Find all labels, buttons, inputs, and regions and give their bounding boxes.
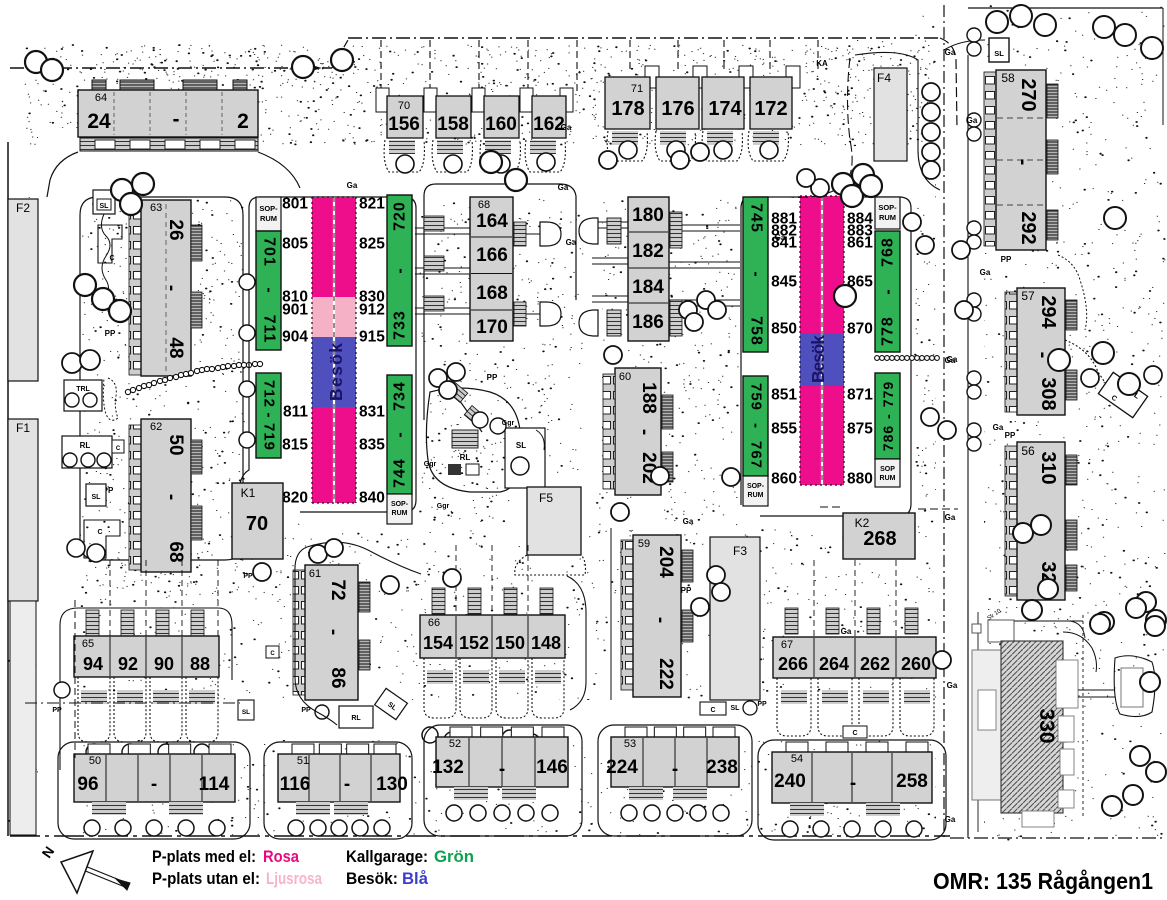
svg-text:170: 170 (476, 317, 508, 338)
svg-text:712: 712 (261, 380, 278, 408)
svg-text:310: 310 (1037, 451, 1059, 484)
svg-text:222: 222 (655, 658, 676, 690)
svg-text:-: - (392, 431, 409, 437)
svg-text:719: 719 (261, 423, 278, 451)
svg-text:-: - (151, 774, 157, 795)
svg-text:820: 820 (282, 490, 308, 507)
svg-text:-: - (323, 629, 344, 635)
svg-text:OMR: 135 Rågången1: OMR: 135 Rågången1 (933, 868, 1153, 894)
svg-text:767: 767 (748, 441, 765, 469)
svg-text:855: 855 (771, 421, 797, 438)
svg-text:845: 845 (771, 274, 797, 291)
svg-text:RUM: RUM (880, 475, 896, 482)
svg-text:-: - (880, 413, 896, 419)
svg-text:180: 180 (632, 205, 664, 226)
svg-text:PP: PP (301, 707, 311, 714)
svg-text:C: C (116, 446, 121, 452)
svg-text:915: 915 (359, 329, 385, 346)
svg-text:50: 50 (165, 434, 186, 455)
svg-text:240: 240 (774, 771, 806, 792)
svg-text:65: 65 (82, 638, 94, 650)
svg-text:54: 54 (791, 753, 803, 765)
svg-text:Ga: Ga (558, 183, 569, 192)
svg-text:-: - (344, 774, 350, 795)
svg-text:SL: SL (994, 49, 1004, 58)
svg-text:825: 825 (359, 236, 385, 253)
svg-text:92: 92 (118, 654, 138, 674)
svg-text:RUM: RUM (879, 213, 896, 222)
svg-text:-: - (634, 429, 655, 435)
svg-text:51: 51 (297, 755, 309, 767)
svg-text:59: 59 (638, 538, 650, 550)
svg-text:174: 174 (708, 98, 742, 120)
svg-text:SL: SL (92, 494, 102, 501)
svg-text:330: 330 (1035, 708, 1058, 743)
svg-text:Ga: Ga (561, 123, 572, 132)
svg-text:811: 811 (283, 404, 308, 421)
svg-text:262: 262 (860, 654, 890, 674)
svg-text:701: 701 (261, 237, 278, 267)
svg-text:-: - (173, 108, 180, 131)
svg-text:72: 72 (327, 579, 348, 600)
svg-text:70: 70 (398, 100, 410, 112)
svg-text:C: C (852, 730, 857, 737)
svg-text:48: 48 (165, 337, 186, 358)
svg-text:F2: F2 (16, 201, 30, 215)
svg-text:172: 172 (754, 98, 787, 120)
svg-text:778: 778 (880, 316, 897, 346)
svg-text:308: 308 (1037, 377, 1059, 410)
svg-text:Ga: Ga (993, 423, 1004, 432)
svg-text:154: 154 (423, 633, 453, 653)
svg-text:26: 26 (165, 219, 186, 240)
svg-text:744: 744 (392, 458, 409, 488)
svg-text:146: 146 (536, 757, 568, 778)
svg-text:912: 912 (359, 302, 385, 319)
svg-text:Ggr: Ggr (424, 461, 437, 468)
svg-text:178: 178 (611, 98, 644, 120)
svg-text:62: 62 (150, 421, 162, 433)
svg-text:164: 164 (476, 211, 508, 232)
svg-text:TRL: TRL (76, 386, 90, 393)
svg-text:K1: K1 (241, 486, 256, 500)
svg-text:258: 258 (896, 771, 928, 792)
svg-text:PP: PP (681, 586, 692, 595)
svg-text:292: 292 (1017, 211, 1039, 244)
svg-text:2: 2 (237, 110, 249, 133)
svg-text:Ga: Ga (945, 513, 956, 522)
svg-text:94: 94 (83, 654, 103, 674)
svg-text:176: 176 (661, 98, 694, 120)
svg-text:Ga: Ga (775, 233, 786, 242)
svg-text:-: - (650, 617, 671, 623)
svg-text:158: 158 (437, 114, 469, 135)
svg-text:57: 57 (1021, 289, 1035, 303)
svg-text:182: 182 (632, 241, 664, 262)
svg-text:RUM: RUM (748, 492, 764, 499)
svg-text:Ga: Ga (980, 268, 991, 277)
svg-text:58: 58 (1001, 71, 1015, 85)
svg-text:Ga: Ga (945, 356, 956, 365)
svg-text:Ga: Ga (347, 181, 358, 190)
svg-text:875: 875 (847, 421, 873, 438)
svg-text:70: 70 (246, 513, 268, 535)
svg-text:204: 204 (655, 546, 676, 578)
svg-text:-: - (672, 759, 678, 780)
svg-text:66: 66 (428, 617, 440, 629)
svg-text:68: 68 (165, 541, 186, 562)
svg-text:720: 720 (392, 201, 409, 231)
svg-text:264: 264 (819, 654, 849, 674)
svg-text:166: 166 (476, 245, 508, 266)
svg-text:24: 24 (87, 110, 111, 133)
svg-text:148: 148 (531, 633, 561, 653)
svg-text:Ga: Ga (841, 627, 852, 636)
svg-text:RUM: RUM (392, 510, 408, 517)
svg-text:RL: RL (351, 715, 361, 722)
svg-text:Ljusrosa: Ljusrosa (266, 869, 322, 888)
svg-text:745: 745 (748, 203, 765, 233)
svg-text:152: 152 (459, 633, 489, 653)
svg-text:68: 68 (478, 199, 490, 211)
svg-text:96: 96 (77, 774, 98, 795)
svg-text:786: 786 (880, 425, 896, 451)
svg-text:Besök: Besök (326, 343, 346, 401)
svg-text:PP: PP (105, 329, 116, 338)
svg-text:160: 160 (485, 114, 517, 135)
svg-text:P-plats med el:: P-plats med el: (152, 847, 256, 866)
svg-text:768: 768 (880, 237, 897, 267)
svg-text:184: 184 (632, 277, 664, 298)
svg-text:64: 64 (95, 92, 107, 104)
svg-text:RUM: RUM (260, 214, 277, 223)
svg-text:56: 56 (1021, 444, 1035, 458)
svg-text:Rosa: Rosa (263, 847, 299, 866)
svg-text:53: 53 (624, 738, 636, 750)
svg-text:P-plats utan el:: P-plats utan el: (152, 869, 260, 888)
svg-text:86: 86 (327, 667, 348, 688)
svg-text:861: 861 (847, 235, 873, 252)
svg-text:Besök: Besök (808, 335, 828, 383)
svg-text:156: 156 (388, 114, 420, 135)
svg-text:224: 224 (606, 757, 638, 778)
svg-text:Grön: Grön (434, 847, 474, 866)
svg-text:-: - (748, 271, 765, 277)
svg-text:C: C (710, 707, 715, 714)
svg-text:SOP: SOP (880, 466, 895, 473)
svg-text:759: 759 (748, 383, 765, 411)
svg-text:821: 821 (359, 196, 385, 213)
svg-text:SL: SL (731, 705, 741, 712)
svg-text:88: 88 (190, 654, 210, 674)
svg-text:SOP-: SOP- (259, 204, 278, 213)
svg-text:880: 880 (847, 471, 873, 488)
svg-text:904: 904 (282, 329, 308, 346)
svg-text:Kallgarage:: Kallgarage: (346, 847, 428, 866)
svg-text:835: 835 (359, 437, 385, 454)
svg-text:Ggr: Ggr (437, 503, 450, 510)
svg-text:168: 168 (476, 283, 508, 304)
svg-text:PP: PP (1001, 255, 1012, 264)
svg-text:Ga: Ga (967, 116, 978, 125)
svg-text:C: C (97, 529, 102, 536)
svg-text:90: 90 (154, 654, 174, 674)
svg-text:50: 50 (89, 755, 101, 767)
svg-text:150: 150 (495, 633, 525, 653)
svg-text:186: 186 (632, 312, 664, 333)
svg-text:-: - (392, 267, 409, 273)
svg-text:840: 840 (359, 490, 385, 507)
svg-text:266: 266 (778, 654, 808, 674)
svg-text:801: 801 (282, 196, 308, 213)
svg-text:260: 260 (901, 654, 931, 674)
svg-text:779: 779 (880, 381, 896, 407)
svg-text:Ga: Ga (947, 681, 958, 690)
svg-text:Blå: Blå (402, 869, 429, 888)
svg-text:63: 63 (150, 202, 162, 214)
svg-text:711: 711 (261, 315, 278, 344)
svg-text:-: - (850, 773, 856, 794)
svg-text:734: 734 (392, 381, 409, 411)
svg-text:871: 871 (847, 387, 873, 404)
svg-text:SL: SL (100, 203, 110, 210)
svg-text:Besök:: Besök: (346, 869, 398, 888)
svg-text:C: C (270, 651, 275, 657)
svg-text:SOP-: SOP- (747, 483, 765, 490)
svg-text:PP: PP (52, 707, 62, 714)
svg-text:114: 114 (199, 774, 230, 795)
svg-text:758: 758 (748, 316, 765, 346)
svg-text:831: 831 (359, 404, 385, 421)
svg-text:RL: RL (80, 441, 91, 450)
svg-text:Ggr: Ggr (502, 420, 515, 427)
svg-text:SL: SL (516, 441, 526, 450)
svg-text:SOP-: SOP- (391, 501, 409, 508)
svg-text:71: 71 (631, 83, 643, 95)
svg-text:F4: F4 (877, 71, 891, 85)
svg-text:PP: PP (757, 701, 767, 708)
svg-text:Ga: Ga (566, 238, 577, 247)
svg-text:268: 268 (863, 528, 896, 550)
svg-text:60: 60 (619, 371, 631, 383)
svg-text:805: 805 (282, 236, 308, 253)
svg-text:-: - (261, 287, 278, 293)
svg-text:C: C (109, 255, 114, 262)
svg-text:KA: KA (816, 59, 828, 68)
svg-text:F5: F5 (539, 491, 553, 505)
svg-text:-: - (748, 423, 765, 429)
svg-text:67: 67 (781, 639, 793, 651)
svg-text:F3: F3 (733, 544, 747, 558)
svg-text:870: 870 (847, 321, 873, 338)
svg-text:815: 815 (282, 437, 308, 454)
svg-text:61: 61 (309, 568, 321, 580)
svg-text:-: - (261, 413, 278, 419)
svg-text:PP: PP (1005, 431, 1016, 440)
svg-text:PP: PP (487, 373, 498, 382)
svg-text:Ga: Ga (945, 48, 956, 57)
svg-text:RL: RL (460, 453, 471, 462)
svg-text:901: 901 (282, 302, 308, 319)
svg-text:Ga: Ga (683, 517, 694, 526)
svg-text:-: - (161, 494, 182, 500)
svg-text:733: 733 (392, 310, 409, 340)
svg-text:-: - (499, 759, 505, 780)
svg-text:-: - (161, 285, 182, 291)
svg-text:294: 294 (1037, 295, 1059, 329)
svg-text:PP: PP (243, 573, 253, 580)
svg-text:F1: F1 (16, 421, 30, 435)
svg-text:850: 850 (771, 321, 797, 338)
svg-text:116: 116 (280, 774, 311, 795)
svg-text:SL: SL (242, 709, 250, 716)
svg-text:851: 851 (771, 387, 797, 404)
svg-text:52: 52 (449, 738, 461, 750)
svg-text:-: - (1012, 159, 1034, 166)
svg-text:860: 860 (771, 471, 797, 488)
svg-text:132: 132 (432, 757, 464, 778)
svg-text:238: 238 (706, 757, 738, 778)
svg-text:-: - (880, 288, 897, 294)
svg-text:270: 270 (1017, 78, 1039, 111)
svg-text:130: 130 (376, 774, 408, 795)
svg-text:N: N (38, 843, 57, 860)
svg-text:188: 188 (638, 382, 659, 414)
svg-text:SOP-: SOP- (878, 203, 897, 212)
